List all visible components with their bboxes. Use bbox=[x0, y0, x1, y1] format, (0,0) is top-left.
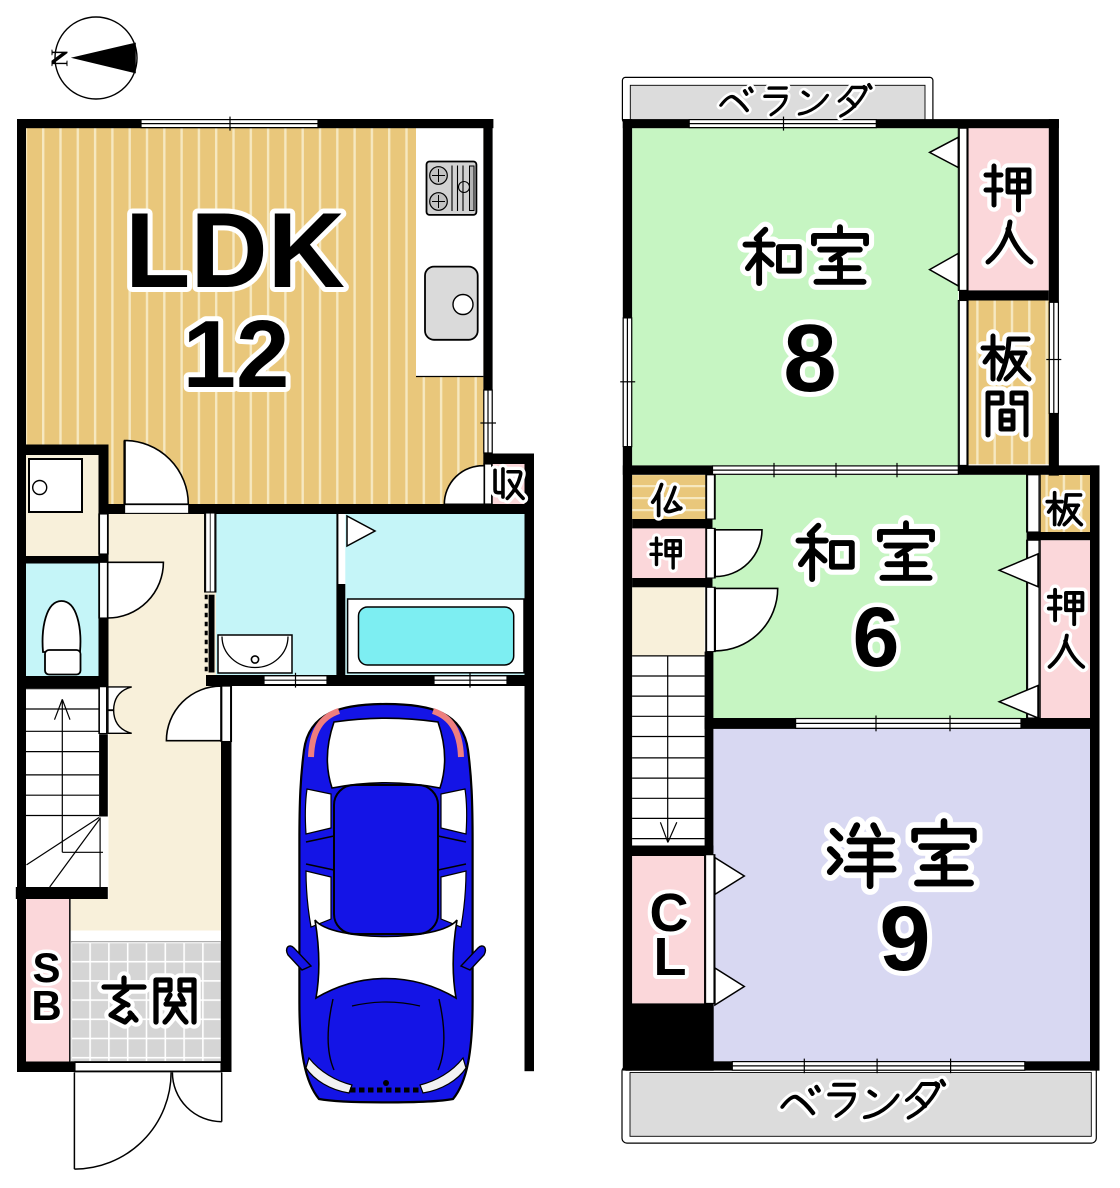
svg-text:6: 6 bbox=[853, 590, 900, 684]
svg-text:8: 8 bbox=[783, 305, 836, 412]
svg-text:9: 9 bbox=[879, 888, 930, 990]
svg-text:B: B bbox=[31, 982, 61, 1029]
svg-text:LDK: LDK bbox=[125, 190, 345, 310]
svg-text:12: 12 bbox=[183, 301, 290, 408]
svg-text:L: L bbox=[654, 927, 687, 987]
svg-text:N: N bbox=[48, 49, 74, 67]
